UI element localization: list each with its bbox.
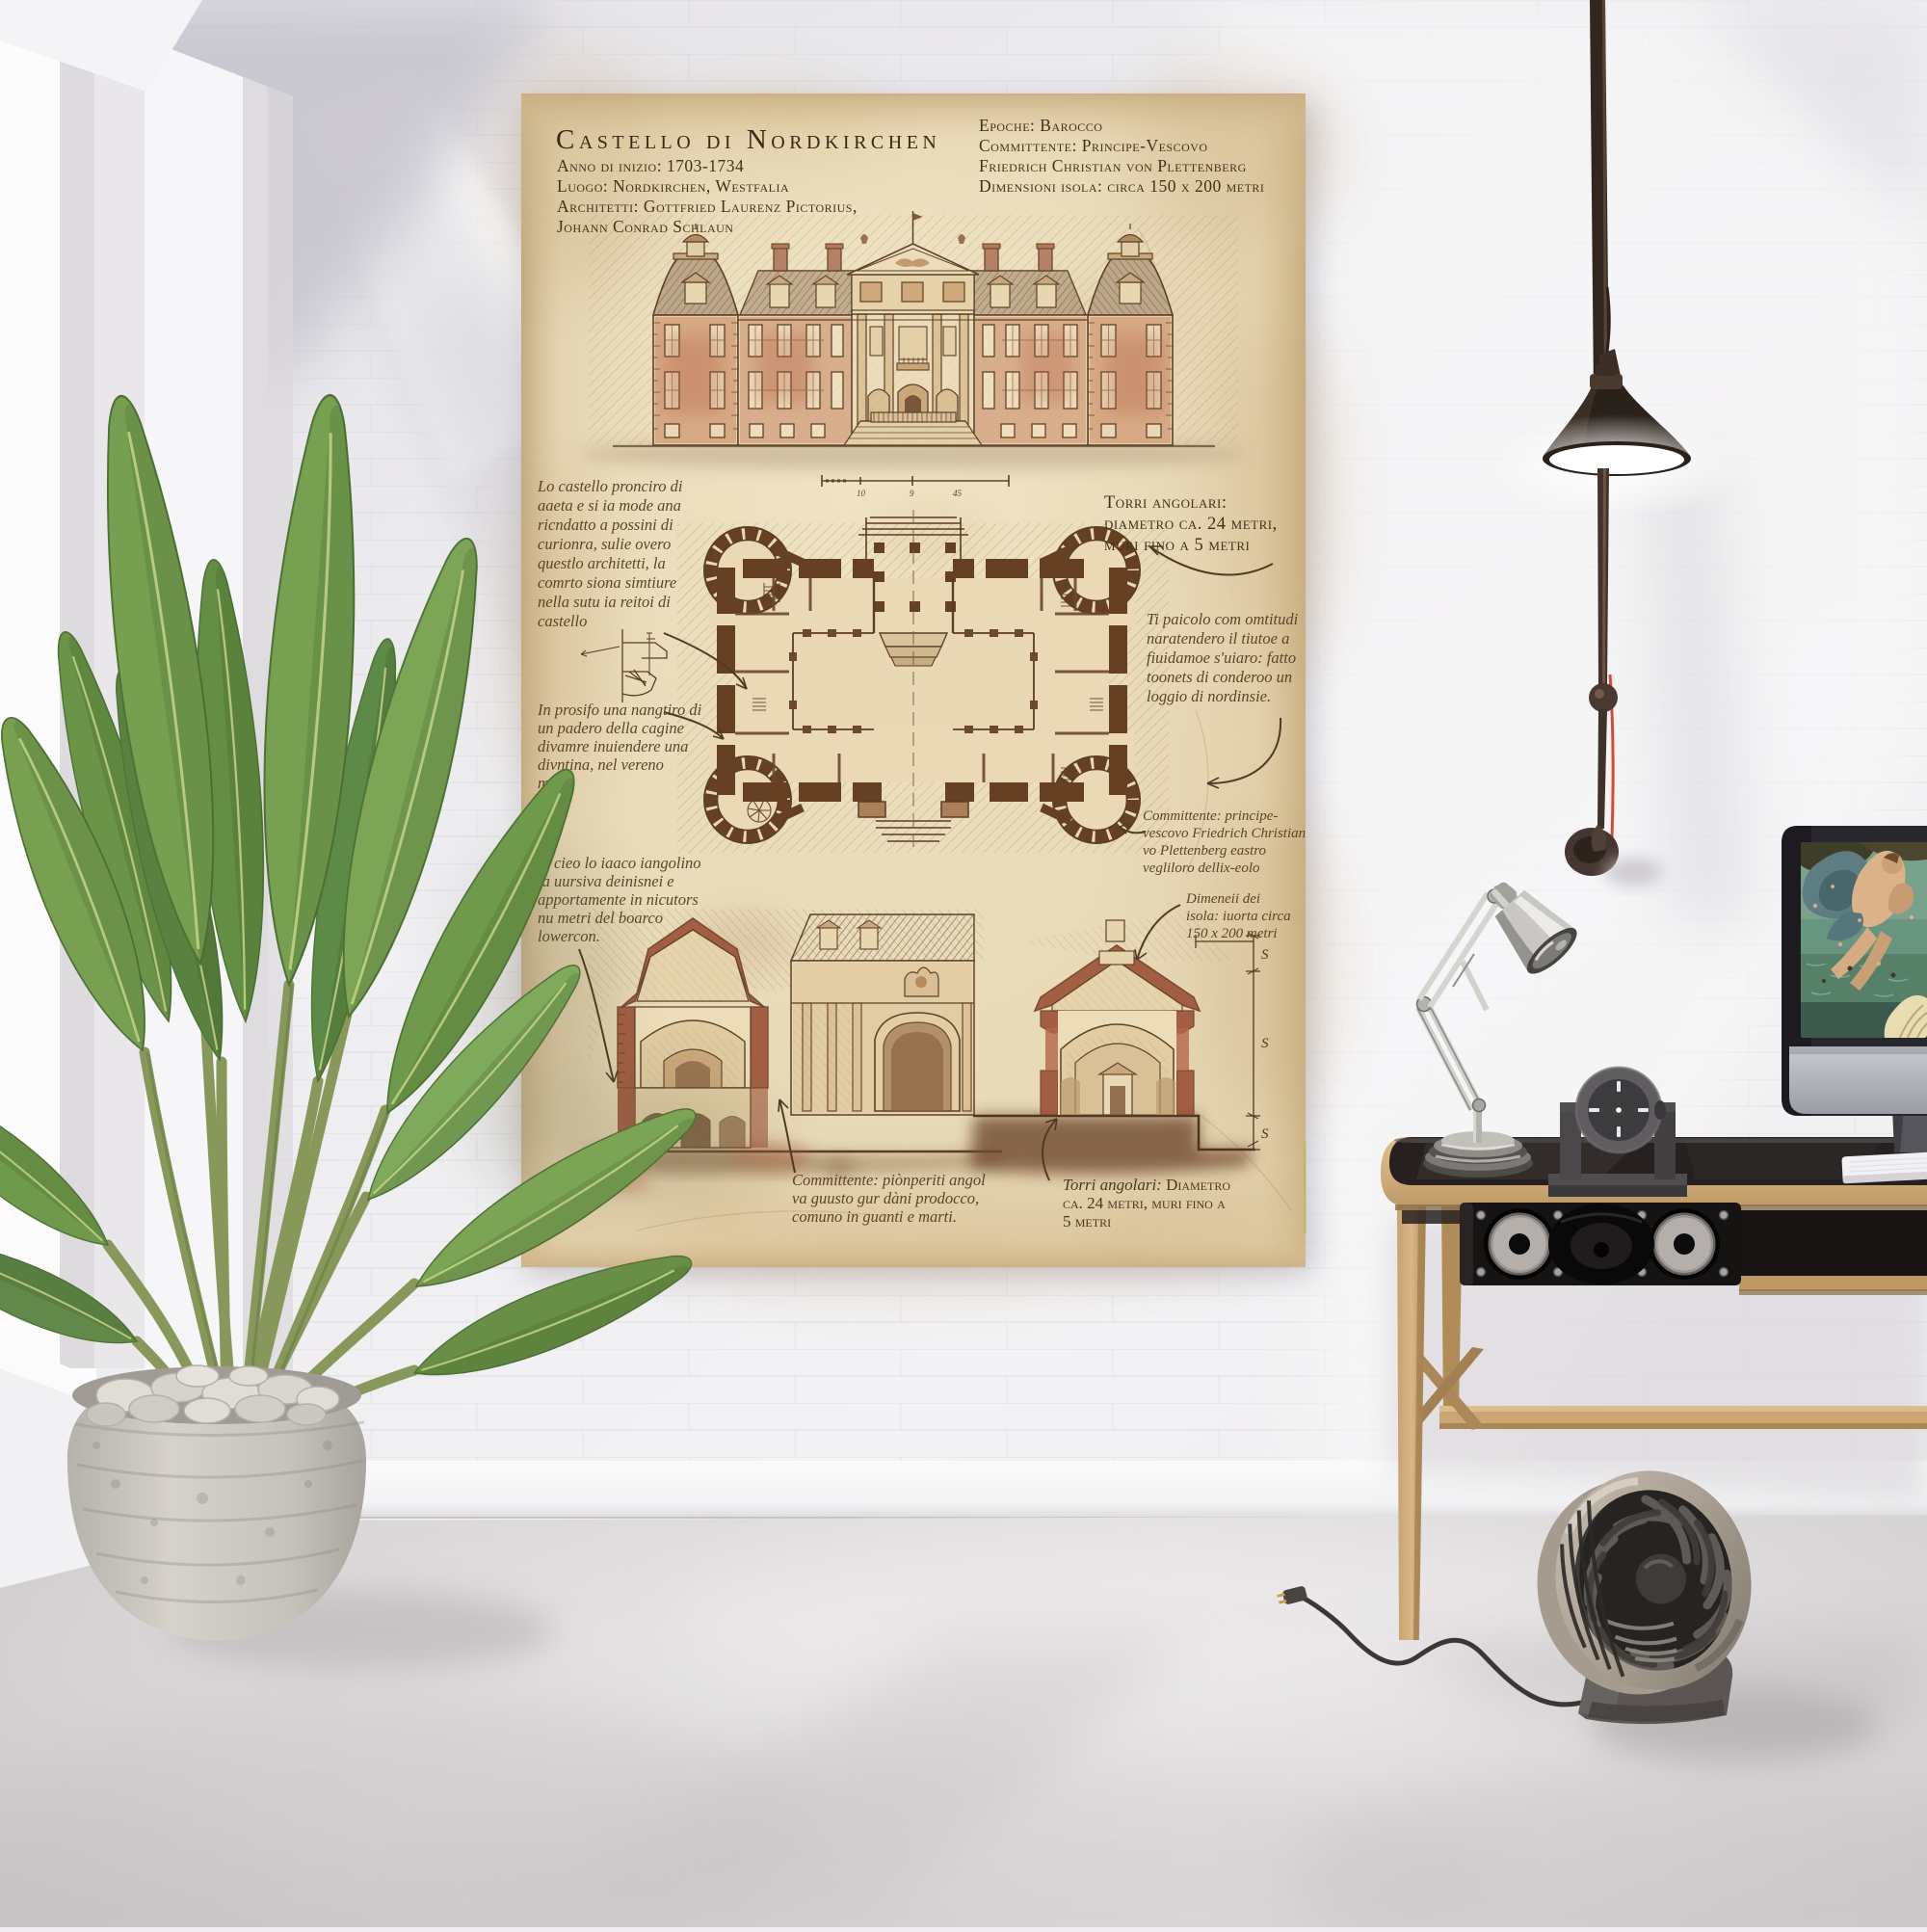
svg-text:fiuidamoe s'uiaro: fatto: fiuidamoe s'uiaro: fatto xyxy=(1147,648,1296,667)
svg-text:divntina, nel vereno: divntina, nel vereno xyxy=(538,755,664,774)
svg-text:va guusto gur dàni prodocco,: va guusto gur dàni prodocco, xyxy=(792,1189,979,1207)
svg-text:un padero della cagine: un padero della cagine xyxy=(538,719,684,737)
svg-text:aaeta e si ia mode ana: aaeta e si ia mode ana xyxy=(538,496,681,515)
svg-text:9: 9 xyxy=(910,489,914,498)
svg-text:curionra, sulie overo: curionra, sulie overo xyxy=(538,535,671,553)
svg-text:Ti paicolo com omtitudi: Ti paicolo com omtitudi xyxy=(1147,610,1299,628)
svg-text:Lo castello pronciro di: Lo castello pronciro di xyxy=(537,477,683,495)
svg-text:Dimensioni isola: circa 150 x: Dimensioni isola: circa 150 x 200 metri xyxy=(979,176,1264,196)
svg-text:ca. 24 metri, muri fino a: ca. 24 metri, muri fino a xyxy=(1063,1194,1226,1212)
svg-text:divamre inuiendere una: divamre inuiendere una xyxy=(538,737,688,755)
svg-text:Friedrich Christian von Plette: Friedrich Christian von Plettenberg xyxy=(979,156,1247,175)
svg-text:Committente: piònperiti angol: Committente: piònperiti angol xyxy=(792,1171,986,1189)
svg-text:S: S xyxy=(1261,1036,1269,1051)
svg-text:comrto siona simtiure: comrto siona simtiure xyxy=(538,573,676,592)
svg-text:Luogo: Nordkirchen, Westfalia: Luogo: Nordkirchen, Westfalia xyxy=(557,176,789,196)
svg-text:150 x 200 metri: 150 x 200 metri xyxy=(1186,926,1278,941)
svg-text:ricndatto a possini di: ricndatto a possini di xyxy=(538,516,673,534)
svg-text:S: S xyxy=(1261,947,1269,963)
svg-text:Castello di Nordkirchen: Castello di Nordkirchen xyxy=(556,124,940,155)
svg-text:45: 45 xyxy=(953,489,963,498)
svg-text:Architetti: Gottfried Laurenz: Architetti: Gottfried Laurenz Pictorius, xyxy=(557,197,858,216)
svg-text:loggio di nordinsie.: loggio di nordinsie. xyxy=(1147,687,1271,705)
svg-text:isola: iuorta circa: isola: iuorta circa xyxy=(1186,909,1291,924)
svg-text:10: 10 xyxy=(857,489,866,498)
svg-text:naratendero il tiutoe a: naratendero il tiutoe a xyxy=(1147,629,1289,648)
svg-text:S: S xyxy=(1261,1126,1269,1142)
svg-text:Anno di inizio: 1703-1734: Anno di inizio: 1703-1734 xyxy=(557,156,744,175)
svg-text:castello: castello xyxy=(538,612,587,630)
svg-text:toonets di conderoo un: toonets di conderoo un xyxy=(1147,668,1292,686)
svg-text:questlo architetti, la: questlo architetti, la xyxy=(538,554,666,572)
svg-text:muri fino a 5 metri: muri fino a 5 metri xyxy=(1104,536,1250,555)
svg-text:vescovo Friedrich Christian: vescovo Friedrich Christian xyxy=(1143,826,1306,841)
svg-text:vo Plettenberg eastro: vo Plettenberg eastro xyxy=(1143,843,1267,859)
svg-text:nella sutu ia reitoi di: nella sutu ia reitoi di xyxy=(538,593,671,611)
svg-text:diametro ca. 24 metri,: diametro ca. 24 metri, xyxy=(1104,515,1278,534)
svg-text:vegliloro dellix-eolo: vegliloro dellix-eolo xyxy=(1143,860,1260,876)
svg-text:Committente: principe-: Committente: principe- xyxy=(1143,808,1278,824)
svg-text:Dimeneii dei: Dimeneii dei xyxy=(1185,891,1260,907)
svg-text:5 metri: 5 metri xyxy=(1063,1212,1111,1231)
svg-text:Torri angolari: Diametro: Torri angolari: Diametro xyxy=(1063,1176,1230,1194)
svg-text:Torri angolari:: Torri angolari: xyxy=(1104,493,1227,513)
svg-text:Committente: Principe-Vescovo: Committente: Principe-Vescovo xyxy=(979,136,1208,155)
svg-text:comuno in guanti e marti.: comuno in guanti e marti. xyxy=(792,1207,957,1226)
svg-text:Epoche: Barocco: Epoche: Barocco xyxy=(979,116,1102,135)
